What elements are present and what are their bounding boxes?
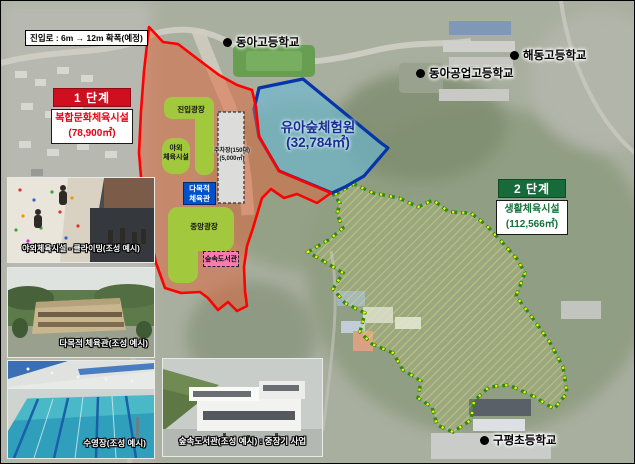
phase1-badge: 1 단계 [53,88,131,107]
outdoor-sports-label: 야외 체육시설 [161,144,191,162]
photo-swimming-pool: 수영장(조성 예시) [7,360,155,459]
site-plan-map: 진입로 : 6m → 12m 확폭(예정) 동아고등학교 해동고등학교 동아공업… [0,0,635,464]
phase2-info-box: 생활체육시설 (112,566㎡) [496,200,568,235]
forest-library-box: 숲속도서관 [203,251,239,267]
forest-zone-area: (32,784㎡) [264,135,372,150]
photo-outdoor-climbing: 야외체육시설 - 클라이밍(조성 예시) [7,177,155,263]
multipurpose-gym-box: 다목적 체육관 [183,182,216,205]
phase2-area: (112,566㎡) [497,218,567,233]
school-label-haedong-high: 해동고등학교 [510,47,586,63]
photo-caption: 숲속도서관(조성 예시) : 중장기 사업 [179,435,306,447]
school-label-gupyeong-elementary: 구평초등학교 [480,432,556,448]
parking-line2: (5,000㎡) [212,155,252,163]
location-dot-icon [510,51,519,60]
entry-road-note: 진입로 : 6m → 12m 확폭(예정) [25,30,148,46]
outdoor-sports-line2: 체육시설 [161,153,191,162]
school-label-donga-technical-high: 동아공업고등학교 [416,65,514,81]
parking-label: 주차장(150대) (5,000㎡) [212,147,252,163]
school-name: 구평초등학교 [493,432,556,448]
school-label-donga-high: 동아고등학교 [223,34,299,50]
phase1-facility: 복합문화체육시설 [52,112,132,127]
location-dot-icon [223,38,232,47]
phase2-facility: 생활체육시설 [497,203,567,218]
photo-forest-library: 숲속도서관(조성 예시) : 중장기 사업 [162,358,323,457]
photo-caption: 야외체육시설 - 클라이밍(조성 예시) [22,243,140,254]
parking-line1: 주차장(150대) [212,147,252,155]
gym-line1: 다목적 [184,184,215,194]
central-plaza-label: 중앙광장 [184,221,224,232]
photo-multipurpose-gym: 다목적 체육관(조성 예시) [7,267,155,358]
school-name: 해동고등학교 [523,47,586,63]
location-dot-icon [416,69,425,78]
forest-zone-name: 유아숲체험원 [264,120,372,135]
entry-plaza-label: 진입광장 [169,104,213,115]
gym-line2: 체육관 [184,194,215,204]
phase2-badge: 2 단계 [498,179,566,198]
photo-caption: 다목적 체육관(조성 예시) [59,337,148,349]
photo-caption: 수영장(조성 예시) [83,437,146,449]
forest-zone-label: 유아숲체험원 (32,784㎡) [264,120,372,150]
school-name: 동아고등학교 [236,34,299,50]
outdoor-sports-line1: 야외 [161,144,191,153]
location-dot-icon [480,436,489,445]
phase1-area: (78,900㎡) [52,127,132,142]
phase1-info-box: 복합문화체육시설 (78,900㎡) [51,109,133,144]
school-name: 동아공업고등학교 [429,65,514,81]
